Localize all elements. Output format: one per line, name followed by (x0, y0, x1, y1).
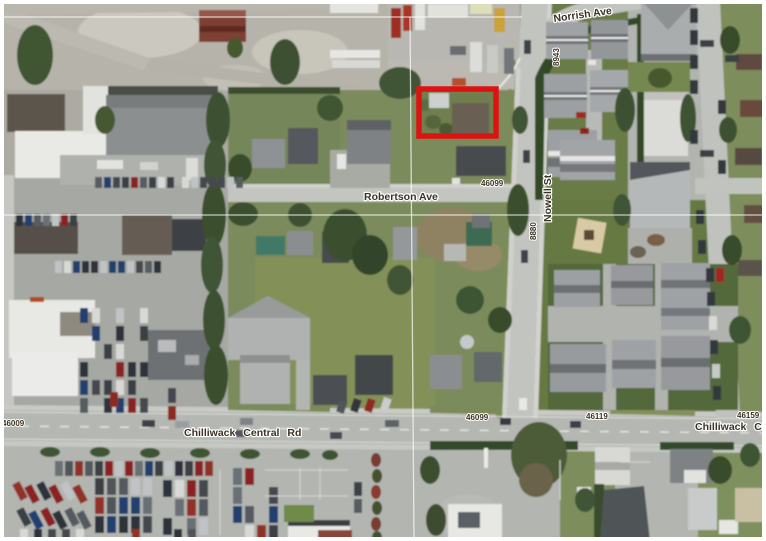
svg-text:Nowell St: Nowell St (542, 174, 554, 222)
svg-text:Chilliwack Central Rd: Chilliwack Central Rd (184, 427, 301, 439)
svg-text:46119: 46119 (586, 412, 608, 421)
svg-text:46099: 46099 (466, 413, 489, 422)
svg-text:Chilliwack Ce: Chilliwack Ce (695, 421, 766, 433)
svg-text:8943: 8943 (552, 48, 561, 66)
svg-text:Robertson Ave: Robertson Ave (364, 191, 438, 203)
svg-text:8880: 8880 (529, 222, 538, 240)
svg-text:46009: 46009 (2, 419, 25, 428)
svg-text:46159: 46159 (737, 411, 760, 420)
svg-text:46099: 46099 (481, 179, 504, 188)
